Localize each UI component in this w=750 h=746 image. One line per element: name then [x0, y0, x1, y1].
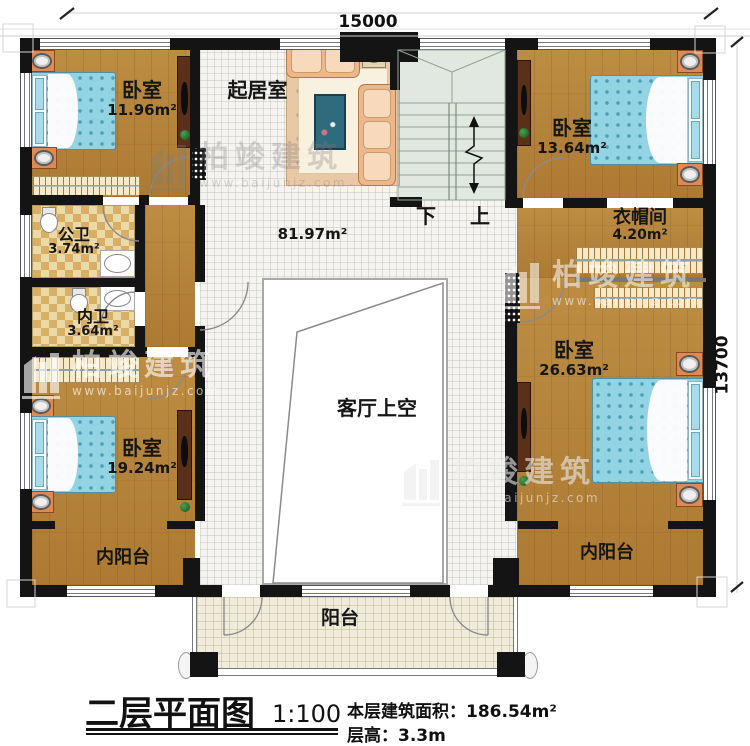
nightstand [29, 50, 55, 72]
wall-pier [493, 558, 519, 597]
room-label-bedroom-bl: 卧室 19.24m² [92, 438, 192, 477]
room-label-bedroom-tr: 卧室 13.64m² [522, 118, 622, 157]
window [280, 38, 340, 50]
balcony-post [497, 652, 525, 677]
dimension-top: 15000 [330, 12, 406, 32]
room-label-cloakroom: 衣帽间 4.20m² [590, 208, 690, 244]
wall-segment [505, 323, 517, 521]
nightstand [677, 50, 703, 73]
wall-segment [20, 347, 147, 357]
structural-column [192, 148, 206, 180]
wall-segment [135, 205, 145, 292]
door-opening [450, 585, 488, 597]
door-opening [222, 585, 260, 597]
wardrobe [32, 176, 140, 196]
room-label-ensuite-bathroom: 内卫 3.64m² [56, 308, 130, 340]
wall-stub [668, 521, 703, 529]
void-over-living [262, 278, 448, 585]
wall-segment [20, 195, 103, 205]
plant [180, 502, 190, 512]
wall-segment [505, 198, 523, 208]
room-label-inner-balcony-right: 内阳台 [552, 543, 662, 562]
wall-segment [135, 326, 145, 347]
coffee-table [314, 94, 346, 150]
window [538, 38, 650, 50]
window [20, 73, 32, 147]
structural-column [505, 273, 520, 323]
wall-stub [30, 521, 55, 529]
room-label-balcony: 阳台 [290, 608, 390, 629]
title-underline [86, 728, 338, 731]
room-label-public-bathroom: 公卫 3.74m² [38, 226, 110, 258]
wardrobe [32, 357, 140, 383]
drawing-scale: 1:100 [272, 700, 341, 728]
plant [180, 130, 190, 140]
wall-segment [673, 198, 703, 208]
staircase [398, 50, 505, 200]
hallway-floor [145, 205, 195, 347]
window [40, 38, 170, 50]
hall-area-label: 81.97m² [265, 226, 360, 243]
half-wall [575, 278, 706, 282]
nightstand [31, 147, 57, 169]
room-label-bedroom-tl: 卧室 11.96m² [92, 80, 192, 119]
window [420, 38, 505, 50]
wall-pier [183, 558, 200, 597]
room-label-inner-balcony-left: 内阳台 [68, 548, 178, 567]
wardrobe [593, 287, 703, 309]
window [20, 413, 32, 489]
nightstand [676, 352, 703, 376]
window [20, 215, 32, 277]
nightstand [676, 483, 703, 507]
wardrobe [575, 247, 703, 274]
wall-segment [195, 205, 205, 282]
wall-stub [167, 521, 195, 529]
tv-cabinet [517, 382, 531, 472]
nightstand [677, 163, 703, 186]
window [570, 585, 653, 597]
room-label-living: 起居室 [205, 80, 310, 102]
wall-segment [20, 278, 135, 287]
bed [592, 378, 705, 483]
balcony-railing [196, 668, 514, 676]
wall-segment [563, 198, 607, 208]
plant [519, 476, 529, 486]
stairs-up-label: 上 [462, 206, 498, 228]
balcony-floor [197, 592, 513, 670]
floor-plan: 卧室 11.96m² 起居室 81.97m² 卧室 13.64m² 衣帽间 4.… [0, 0, 750, 745]
floor-height-info: 层高：3.3m [347, 721, 446, 746]
title-underline [86, 733, 338, 735]
window [302, 585, 410, 597]
balcony-post [190, 652, 218, 677]
wall-segment [139, 195, 149, 205]
wall-segment [390, 38, 400, 90]
wall-pier [340, 32, 418, 62]
wall-stub [518, 521, 558, 529]
wall-segment [188, 195, 200, 205]
floor-area-info: 本层建筑面积：186.54m² [347, 697, 557, 722]
wall-segment [505, 38, 517, 208]
dimension-right: 13700 [703, 320, 743, 410]
room-label-bedroom-br: 卧室 26.63m² [524, 340, 624, 379]
stairs-down-label: 下 [408, 206, 444, 228]
window [67, 585, 155, 597]
wall-segment [195, 326, 205, 521]
sofa [358, 84, 396, 186]
void-label: 客厅上空 [322, 398, 432, 420]
window [703, 80, 716, 164]
